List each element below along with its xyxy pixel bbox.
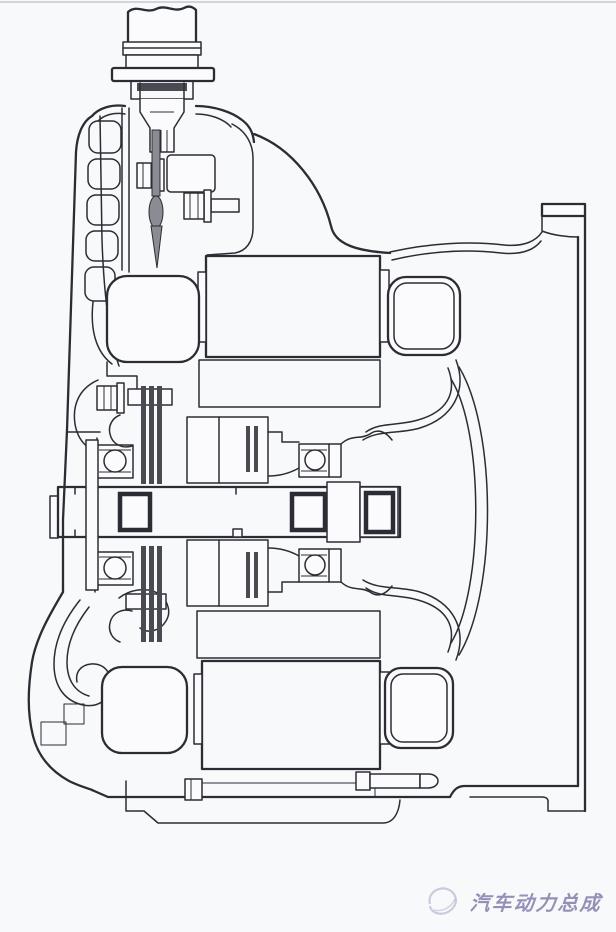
lower-web	[366, 588, 451, 652]
terminal-bushing	[112, 7, 214, 152]
bottom-step-right	[470, 797, 585, 811]
resolver-stack	[149, 386, 154, 484]
rib-pocket	[89, 121, 121, 153]
clamp-bolt	[254, 552, 258, 598]
scroll-outer	[29, 592, 92, 790]
upper-stator-lamination	[206, 256, 380, 357]
resolver-stack	[141, 546, 146, 642]
funnel-insert	[140, 99, 184, 152]
bearing-ball	[104, 450, 126, 472]
resolver-stack	[157, 386, 162, 484]
circlip-groove	[233, 529, 242, 537]
probe-bulge	[149, 196, 163, 228]
ball-bearing	[299, 444, 341, 477]
hub-neck	[268, 468, 299, 476]
bolt-shaft	[211, 199, 239, 212]
flange-step	[542, 216, 578, 237]
tie-bolt-threads	[202, 783, 375, 797]
bolt-tip	[420, 774, 438, 788]
lower-rotor-lamination	[197, 611, 380, 658]
upper-web	[366, 368, 451, 432]
mounting-flange	[542, 204, 585, 216]
lower-stator-lamination	[202, 661, 380, 769]
probe-tip	[151, 226, 162, 268]
tie-bolt-head	[185, 779, 202, 800]
bearing-ball	[305, 450, 325, 470]
drawing-page: 汽车动力总成	[0, 0, 616, 932]
seal-section	[64, 704, 84, 724]
rib-pocket	[88, 159, 120, 189]
spline-section	[120, 494, 150, 530]
resolver-stack	[149, 546, 154, 642]
shaft-shoulder	[327, 482, 360, 542]
housing-rim-right-inner	[196, 114, 231, 127]
band-ring	[126, 55, 198, 68]
bolt-washer	[117, 383, 124, 413]
ball-bearing	[97, 552, 133, 585]
upper-web	[363, 360, 460, 440]
hub-neck	[268, 548, 299, 556]
boss-block	[167, 155, 215, 192]
spline-section	[292, 494, 325, 530]
cross-section-diagram	[0, 0, 616, 932]
main-shaft	[50, 482, 400, 542]
rib-pocket	[87, 195, 119, 225]
end-winding-left	[107, 276, 199, 362]
bearing-ball	[104, 557, 126, 579]
bolt-shank	[370, 774, 420, 788]
ball-bearing	[97, 445, 133, 478]
upper-outer-boundary	[254, 134, 390, 253]
resolver-stack	[141, 386, 146, 484]
top-web-curve	[390, 232, 542, 252]
clamp-bolt	[246, 426, 250, 472]
web-bulge-inner	[451, 379, 476, 643]
shaft-end-bore	[366, 493, 393, 532]
hex-bolt-head	[97, 386, 117, 410]
ball-bearing	[299, 549, 341, 582]
motor-2	[102, 611, 453, 800]
housing-rim-left-inner	[98, 113, 125, 121]
bolt-washer	[204, 190, 211, 222]
bracket-hook	[109, 610, 132, 642]
bearing-ball	[305, 555, 325, 575]
hex-bolt-head	[184, 193, 204, 219]
bracket-hook	[109, 415, 132, 447]
bottom-contour	[92, 786, 578, 797]
end-winding-right	[388, 277, 460, 355]
bolt-collar	[356, 772, 370, 790]
stator-end-plate	[194, 674, 202, 744]
housing-rim-right	[196, 106, 254, 142]
shaft-pilot	[50, 496, 58, 538]
seal-ring	[137, 83, 187, 91]
upper-rotor-lamination	[199, 360, 380, 407]
probe-shaft	[152, 130, 160, 196]
oil-passage-inner	[67, 607, 89, 696]
broken-cylinder	[128, 7, 196, 42]
bearing-support-plate	[86, 440, 98, 590]
end-winding-right	[385, 668, 453, 748]
clamp-bolt	[246, 552, 250, 598]
hub-neck	[268, 432, 299, 442]
top-web-curve	[392, 241, 541, 260]
end-winding-left	[102, 667, 187, 753]
hub-neck	[268, 582, 299, 592]
seal-section	[41, 722, 66, 745]
clamp-bolt	[254, 426, 258, 472]
resolver-stack	[157, 546, 162, 642]
lower-web	[363, 580, 460, 660]
flange-plate	[112, 68, 214, 81]
shaft-steps	[75, 487, 236, 537]
motor-1	[107, 256, 460, 407]
